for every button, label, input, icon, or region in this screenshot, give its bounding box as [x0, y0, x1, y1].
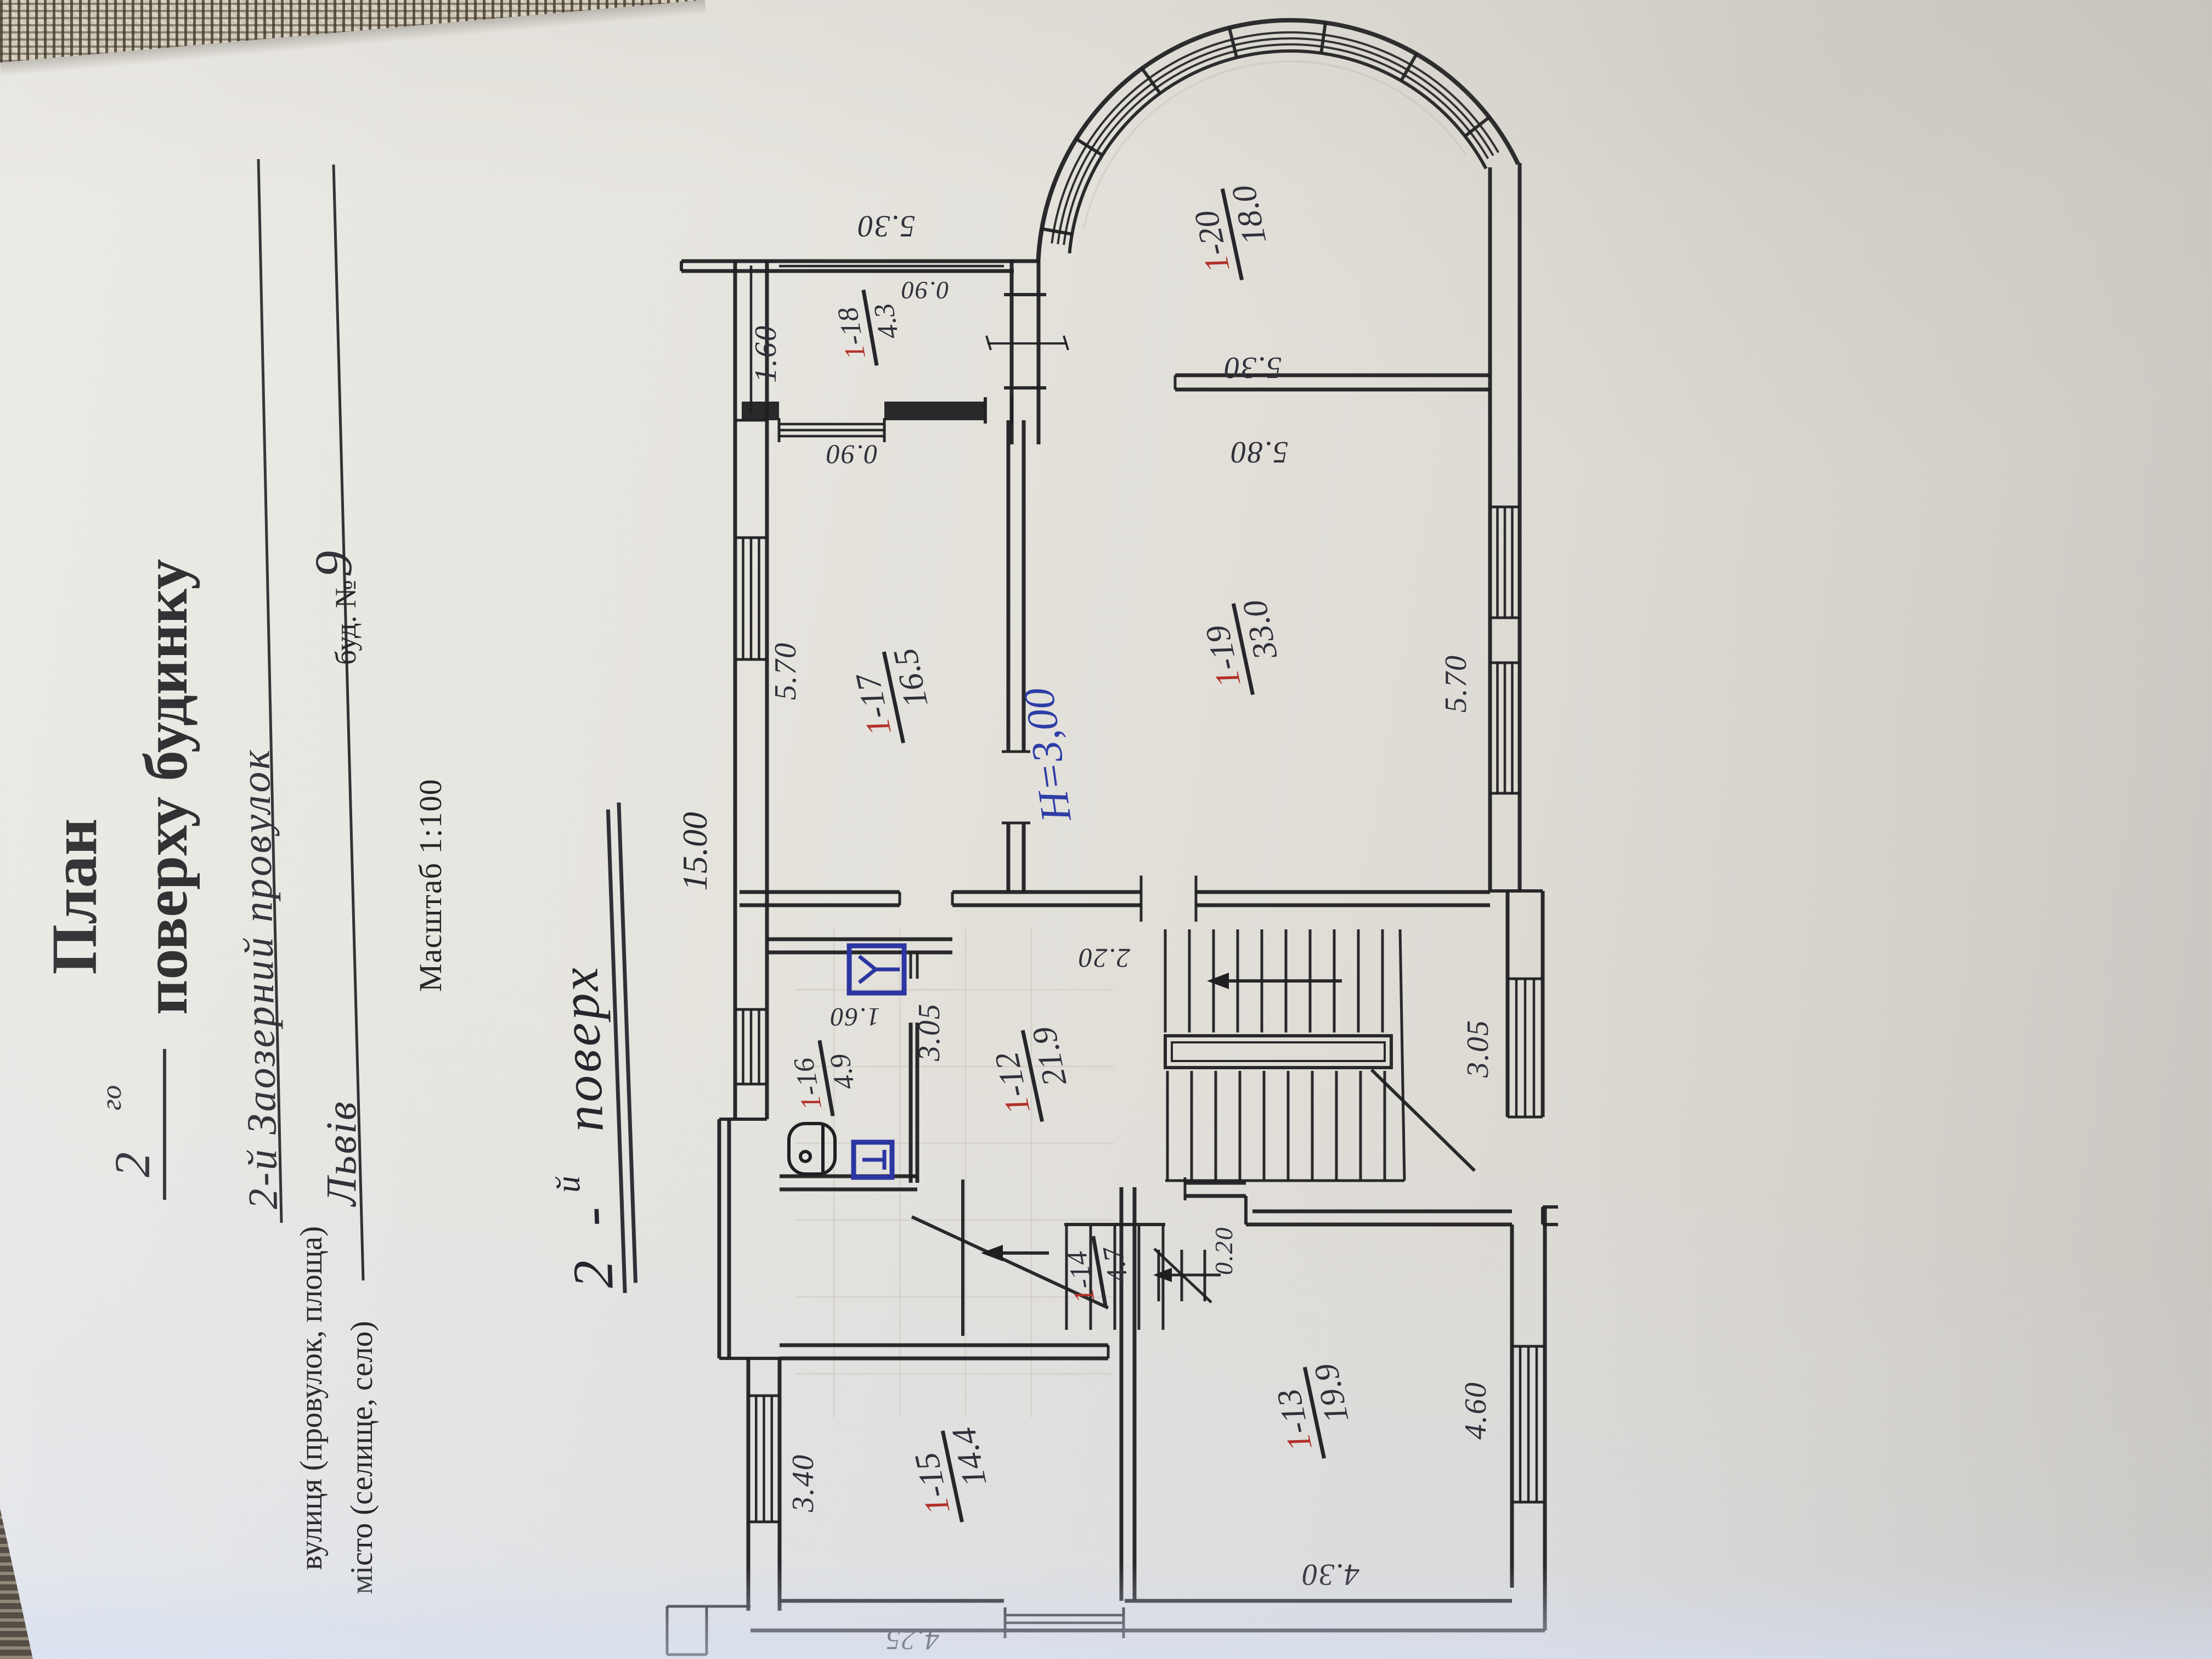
svg-text:2: 2 — [104, 1152, 160, 1177]
svg-text:поверху будинку: поверху будинку — [132, 559, 200, 1015]
svg-text:Масштаб 1:100: Масштаб 1:100 — [413, 778, 448, 992]
svg-text:4.30: 4.30 — [1301, 1558, 1359, 1592]
svg-text:2-й Заозерний провулок: 2-й Заозерний провулок — [232, 748, 286, 1210]
svg-text:-: - — [560, 1206, 623, 1227]
svg-text:4.3: 4.3 — [868, 301, 905, 341]
svg-text:5.70: 5.70 — [769, 642, 803, 700]
svg-text:1.60: 1.60 — [749, 325, 783, 383]
svg-text:4.7: 4.7 — [1097, 1244, 1135, 1285]
svg-text:3.05: 3.05 — [1461, 1019, 1495, 1078]
svg-text:4.25: 4.25 — [885, 1624, 939, 1655]
svg-text:4.9: 4.9 — [824, 1051, 861, 1092]
svg-text:5.80: 5.80 — [1230, 435, 1288, 469]
svg-text:вулиця (провулок, площа): вулиця (провулок, площа) — [294, 1226, 329, 1570]
svg-text:3.05: 3.05 — [912, 1003, 946, 1062]
svg-text:9: 9 — [304, 551, 363, 577]
svg-text:H=3,00: H=3,00 — [1014, 685, 1080, 826]
svg-text:й: й — [550, 1175, 588, 1193]
svg-text:1.60: 1.60 — [830, 1002, 880, 1031]
svg-text:3.40: 3.40 — [786, 1454, 820, 1513]
svg-text:План: План — [38, 819, 110, 975]
svg-text:0.90: 0.90 — [901, 276, 950, 304]
svg-text:5.70: 5.70 — [1439, 654, 1473, 713]
svg-text:0.20: 0.20 — [1210, 1227, 1238, 1276]
svg-text:місто (селище, село): місто (селище, село) — [345, 1321, 379, 1594]
svg-text:2.20: 2.20 — [1078, 943, 1131, 974]
svg-text:5.30: 5.30 — [857, 209, 915, 243]
svg-text:го: го — [96, 1085, 127, 1110]
svg-text:Львів: Львів — [317, 1100, 365, 1207]
svg-text:5.30: 5.30 — [1223, 351, 1282, 385]
svg-text:0.90: 0.90 — [826, 439, 878, 470]
svg-text:15.00: 15.00 — [675, 812, 714, 891]
svg-text:поверх: поверх — [550, 964, 615, 1133]
svg-text:4.60: 4.60 — [1459, 1381, 1493, 1440]
svg-text:2: 2 — [561, 1259, 625, 1290]
